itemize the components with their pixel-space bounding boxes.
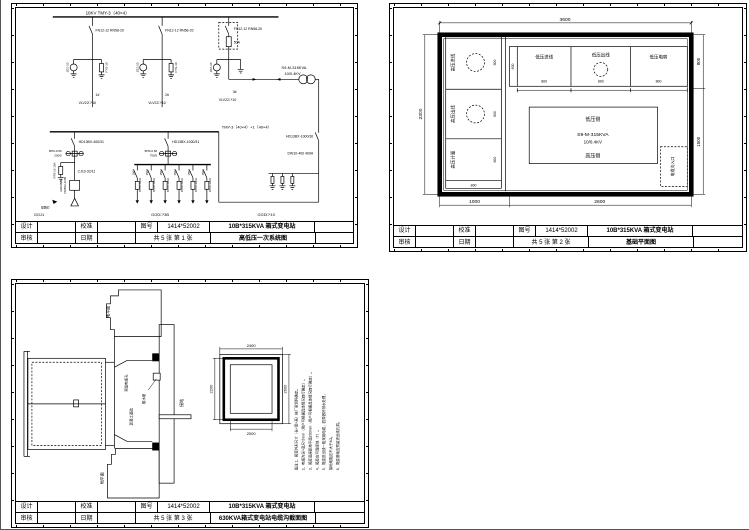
cable-entry-label: 电缆沟入口 [670, 157, 675, 177]
frame-ticks [16, 525, 364, 527]
tb-product: 10B*315KVA 箱式变电站 [210, 502, 315, 512]
concrete-base-label: 混凝土基础 [128, 408, 133, 426]
tb-review-value [416, 237, 454, 248]
lv-feeder-4: 150A NT00-100A [173, 165, 184, 204]
hv-cell-dim: 600 [493, 111, 497, 117]
sheet-oneline-diagram: 10KV TMY-3（40×4） FN12-12 RN58-20 JDZ-10 … [11, 3, 358, 248]
tb-product: 10B*315KVA 箱式变电站 [210, 222, 315, 232]
sheet-floor-plan: 3600 2300 800 1500 1000 2600 [389, 3, 747, 252]
reserved-hole [153, 373, 160, 380]
contactor-label: CJ10-32/11 [78, 169, 96, 173]
pt-label: JDZ-10 [209, 62, 213, 72]
plan-dim-bottom: 2000 [247, 431, 257, 436]
cable-trench-entry: 电缆沟入口 [660, 147, 687, 187]
tb-empty [693, 226, 742, 236]
hv-width-dim: 800 [471, 183, 477, 187]
hv-cell-label: 高压进线 [450, 53, 457, 71]
ct-label: BH0-0.66 [145, 149, 158, 153]
switch-label: FN12-12 RN58-20 [234, 27, 262, 31]
dim-bottom-right: 2600 [594, 199, 605, 205]
cable-label: VLV22□*10 [219, 98, 237, 102]
sheet-trench-section: 地平面 地平面 [11, 279, 369, 528]
tb-check-value [476, 226, 514, 236]
earthing-label: 接地 [179, 399, 184, 407]
lv-cell-label: 低压进线 [535, 54, 553, 61]
tb-dwgno-label: 图号 [136, 502, 158, 512]
dim-right-bottom: 1500 [696, 136, 701, 146]
tb-check-label: 校准 [454, 226, 476, 236]
arrester-label: FYS-10 [174, 62, 178, 72]
tb-dwgno-label: 图号 [514, 226, 536, 236]
feeder-fuse: NT00-100A [138, 178, 142, 192]
tb-empty [316, 513, 364, 524]
lv-cell-label: 低压出线 [592, 52, 610, 59]
hv-cell-dim: 600 [493, 60, 497, 66]
tb-date-label: 日期 [76, 513, 98, 524]
hv-bus-label: 10KV TMY-3（40×4） [86, 10, 130, 15]
hv-cell-label: 高压计量 [450, 150, 457, 168]
switch-label: FN12-12 RN58-20 [96, 28, 124, 32]
tb-design-label: 设计 [16, 502, 38, 512]
ground-level-label: 地平面 [105, 306, 110, 318]
fan-symbol [594, 62, 608, 76]
note-line: 4、箱变应可靠接地（T）。 [314, 428, 319, 470]
cabinet-label: GGD□*3B [151, 212, 169, 217]
tb-dwgno-value: 1414*52002 [536, 226, 588, 236]
note-line: 接地电阻应不大于4Ω。 [328, 435, 333, 471]
feeder-fuse: NT00-100A [180, 178, 184, 192]
lv-depth-dim: 600 [511, 64, 515, 70]
cable-number: 1# [96, 93, 100, 97]
lv-busbar: TMY-3（40×4）+1（40×4） [50, 124, 272, 131]
lv-feeder-2: 150A NT00-100A [145, 165, 156, 204]
brick-hatch-top [106, 290, 161, 337]
transformer-symbol: S9-M-315KVA 10/0.4KV [281, 65, 318, 84]
cable-trench-outline [105, 337, 160, 449]
tb-product: 10B*315KVA 箱式变电站 [588, 226, 693, 236]
door-handle [74, 400, 79, 407]
grounding-bar [159, 415, 191, 419]
lv-switch-label: HD13BX-1000/31 [172, 140, 199, 144]
fan-symbol [467, 105, 485, 123]
tb-empty [694, 237, 742, 248]
tb-check-label: 校准 [76, 502, 98, 512]
lv-side-label: 低压侧 [585, 116, 600, 123]
apron-label: 散水坡 [141, 393, 146, 404]
frame-ticks [16, 4, 353, 6]
lv-feeder-3: 150A NT00-100A [159, 165, 170, 204]
lv-cell-dim: 800 [541, 79, 547, 83]
note-line: 5、箱变进出线一般采用电缆，四周做好排水处理， [321, 392, 326, 470]
frame-ticks [12, 8, 14, 243]
tb-date-value [98, 513, 136, 524]
cable-label: VLV22□*10 [148, 101, 166, 105]
cabinet-labels: GGJ1 GGD□*3B GGD□*10 [34, 212, 276, 217]
lv-bus-label: TMY-3（40×4）+1（40×4） [222, 124, 272, 129]
ct-ratio: 750/5 [150, 154, 158, 158]
meter-voltage: 220/380V [59, 179, 63, 192]
hv-cell-dim: 600 [493, 157, 497, 163]
wall-cap [152, 443, 159, 451]
incoming-switch-label: HD13BX-1000/30 [286, 134, 313, 138]
frame-ticks [12, 284, 14, 523]
tb-design-label: 设计 [16, 222, 38, 232]
tb-review-value [38, 513, 76, 524]
lamp-label: 接路灯 [41, 205, 50, 210]
drawing-frame: 地平面 地平面 [15, 283, 365, 524]
feeder-fuse: NT00-100A [152, 178, 156, 192]
tb-empty [315, 222, 353, 232]
dim-right-top: 800 [696, 57, 701, 65]
switch-label: FN12-12 RN58-20 [165, 28, 193, 32]
feeder-fuse: NT00-100A [166, 178, 170, 192]
tb-sheet-name: 高低压一次系统图 [211, 233, 316, 244]
feeder-fuse: NT00-100A [194, 178, 198, 192]
hv-feeder-branch-1: FN12-12 RN58-20 JDZ-10 FYS-10 1# VLV22□*… [66, 17, 124, 107]
title-block: 设计 校准 图号 1414*52002 10B*315KVA 箱式变电站 审核 … [16, 501, 364, 523]
tb-check-value [98, 222, 136, 232]
hv-cell-label: 高压出线 [450, 105, 457, 123]
cabinet-label: GGJ1 [34, 212, 44, 217]
incoming-breaker-label: DW10-400 400A [288, 152, 314, 156]
tb-pages: 共 5 张 第 2 张 [514, 237, 589, 248]
fuse-label: 50A [234, 41, 241, 45]
feeder-rating: 150A [159, 169, 163, 176]
hv-transformer-branch: FN12-12 RN58-20 50A JDZ-10 3# VLV22□*10 [209, 17, 299, 102]
pt-label: JDZ-10 [135, 62, 139, 72]
lv-panel-row: 600 低压进线 低压出线 低压电容 800 800 800 [509, 47, 687, 93]
plan-dim-top: 2400 [247, 343, 257, 348]
ct-label: BH0-0.66 [49, 149, 62, 153]
plan-dimensions: 3600 2300 800 1500 1000 2600 [418, 17, 705, 207]
frame-ticks [366, 284, 368, 523]
tb-check-label: 校准 [76, 222, 98, 232]
ct-ratio: 200/5 [54, 154, 62, 158]
frame-ticks [394, 4, 742, 6]
pt-delta-symbol [71, 198, 79, 206]
reserved-hole-label: 预留电缆孔 [123, 374, 128, 392]
oneline-diagram-svg: 10KV TMY-3（40×4） FN12-12 RN58-20 JDZ-10 … [16, 8, 353, 221]
tb-date-value [98, 233, 136, 244]
tb-review-label: 审核 [16, 233, 38, 244]
frame-ticks [355, 8, 357, 243]
tb-sheet-name: 630KVA箱式变电站电缆沟截面图 [211, 513, 316, 524]
title-block: 设计 校准 图号 1414*52002 10B*315KVA 箱式变电站 审核 … [16, 221, 353, 243]
floor-plan-svg: 3600 2300 800 1500 1000 2600 [394, 8, 742, 225]
lv-feeder-6: 150A NT00-100A [201, 165, 212, 204]
tb-dwgno-value: 1414*52002 [158, 222, 210, 232]
note-line: 2、电缆沟深×宽尺寸mm（用户可根据具体情况自行确定）。 [300, 377, 305, 470]
foundation-section: 地平面 地平面 [24, 290, 191, 498]
feeder-fuse: NT00-100A [208, 178, 212, 192]
frame-ticks [394, 249, 742, 251]
cable-label: VLV22□*10 [79, 101, 97, 105]
tb-design-value [38, 222, 76, 232]
note-line: 备注:1、箱变外形尺寸（长×宽×高）按厂家资料确定。 [293, 387, 298, 470]
tb-empty [316, 233, 353, 244]
tb-design-value [38, 502, 76, 512]
transformer-voltage: 10/0.4KV [584, 139, 602, 144]
box-transformer-enclosure [24, 351, 106, 456]
plan-dim-right: 2600 [282, 384, 287, 394]
note-line: 6、箱变基础应预留进出线孔洞。 [335, 420, 340, 470]
tb-pages: 共 5 张 第 3 张 [136, 513, 211, 524]
lv-feeder-5: 150A NT00-100A [187, 165, 198, 204]
brick-hatch-bottom [107, 448, 159, 498]
cable-arrow [253, 78, 257, 81]
cable-number: 2# [165, 93, 169, 97]
plan-dim-left: 2200 [208, 384, 213, 394]
tb-design-label: 设计 [394, 226, 416, 236]
transformer-model: S9-M-315KVA [577, 132, 609, 138]
cable-number: 3# [233, 90, 237, 94]
dim-top: 3600 [559, 17, 570, 23]
hv-side-label: 高压侧 [585, 153, 600, 160]
notes-column: 备注:1、箱变外形尺寸（长×宽×高）按厂家资料确定。 2、电缆沟深×宽尺寸mm（… [293, 370, 340, 470]
hv-cubicle-column: 高压进线 高压出线 高压计量 600 600 600 800 [446, 37, 506, 192]
note-line: 3、箱变底座距地平面200mm（用户可根据具体情况自行确定）。 [307, 370, 312, 470]
fuse-label: RT8-16 10A [52, 162, 56, 178]
feeder-rating: 150A [173, 169, 177, 176]
lv-cell-dim: 800 [656, 79, 662, 83]
wall-cap [152, 353, 159, 361]
tb-review-label: 审核 [16, 513, 38, 524]
lv-feeder-1: 150A NT00-100A [131, 165, 142, 204]
transformer-voltage: 10/0.4KV [284, 71, 301, 76]
tb-sheet-name: 基础平面图 [589, 237, 694, 248]
tb-check-value [98, 502, 136, 512]
feeder-rating: 150A [187, 169, 191, 176]
ground-level-label: 地平面 [99, 472, 104, 484]
feeder-rating: 150A [131, 169, 135, 176]
transformer-model: S9-M-315KVA [281, 65, 306, 70]
arrester-label: FYS-10 [104, 62, 108, 72]
feeder-rating: 150A [145, 169, 149, 176]
tb-date-value [476, 237, 514, 248]
lv-switch-label: HD13BX-400/31 [79, 140, 104, 144]
title-block: 设计 校准 图号 1414*52002 10B*315KVA 箱式变电站 审核 … [394, 225, 742, 247]
hv-feeder-branch-2: FN12-12 RN58-20 JDZ-10 FYS-10 2# VLV22□*… [135, 17, 193, 107]
concrete-band [159, 325, 174, 484]
cable-arrow [277, 78, 281, 81]
pt-label: JDZ-10 [66, 62, 70, 72]
hv-busbar: 10KV TMY-3（40×4） [53, 10, 279, 16]
foundation-plan: 2400 2600 2000 2200 [208, 343, 291, 436]
dim-bottom-left: 1000 [469, 199, 480, 205]
tb-design-value [416, 226, 454, 236]
lv-cell-label: 低压电容 [650, 54, 668, 61]
tb-date-label: 日期 [76, 233, 98, 244]
tb-date-label: 日期 [454, 237, 476, 248]
lv-cell-dim: 800 [598, 79, 604, 83]
lv-metering-branch: HD13BX-400/31 BH0-0.66 200/5 RT8-16 10A … [41, 132, 104, 210]
frame-ticks [16, 280, 364, 282]
feeder-rating: 150A [201, 169, 205, 176]
frame-ticks [744, 8, 746, 247]
tb-dwgno-value: 1414*52002 [158, 502, 210, 512]
fan-symbol [467, 54, 485, 72]
trench-section-svg: 地平面 地平面 [16, 284, 364, 501]
drawing-frame: 10KV TMY-3（40×4） FN12-12 RN58-20 JDZ-10 … [15, 7, 354, 244]
tb-empty [315, 502, 364, 512]
tb-review-value [38, 233, 76, 244]
transformer-room: 低压侧 S9-M-315KVA 10/0.4KV 高压侧 [529, 107, 657, 163]
lv-feeder-group: HD13BX-1000/31 BH0-0.66 750/5 150A NT00-… [131, 132, 212, 204]
tb-dwgno-label: 图号 [136, 222, 158, 232]
drawing-canvas: 10KV TMY-3（40×4） FN12-12 RN58-20 JDZ-10 … [0, 0, 749, 530]
frame-ticks [16, 245, 353, 247]
cabinet-label: GGD□*10 [258, 212, 276, 217]
drawing-frame: 3600 2300 800 1500 1000 2600 [393, 7, 743, 248]
lamp-arrow [52, 200, 57, 204]
frame-ticks [390, 8, 392, 247]
dim-left: 2300 [418, 108, 424, 119]
tb-review-label: 审核 [394, 237, 416, 248]
meter-model: DD862-4/3B [63, 177, 67, 193]
tb-pages: 共 5 张 第 1 张 [136, 233, 211, 244]
